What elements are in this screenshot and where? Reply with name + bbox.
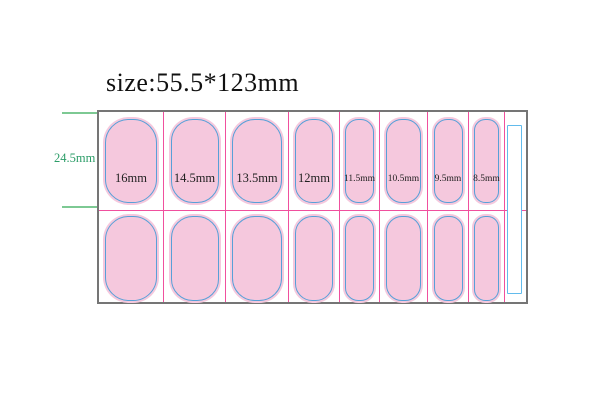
nail-stroke-outline (295, 216, 333, 301)
nail-stroke-outline (232, 216, 282, 301)
nail-stroke-outline (232, 119, 282, 203)
nail-stroke-outline (295, 119, 333, 203)
nail-stroke-outline (434, 119, 463, 203)
column-cell: 8.5mm (469, 112, 505, 302)
nail-shape-row1 (103, 117, 159, 205)
nail-shape-row2 (384, 214, 423, 303)
nail-stroke-outline (386, 119, 421, 203)
nail-stroke-outline (434, 216, 463, 301)
nail-size-label: 16mm (99, 171, 163, 186)
column-cell: 10.5mm (380, 112, 428, 302)
nail-shape-row2 (103, 214, 159, 303)
column-cell: 12mm (289, 112, 340, 302)
sheet-outline: 16mm14.5mm13.5mm12mm11.5mm10.5mm9.5mm8.5… (97, 110, 528, 304)
column-cell: 14.5mm (164, 112, 226, 302)
nail-size-label: 10.5mm (380, 174, 427, 184)
nail-shape-row1 (343, 117, 376, 205)
nail-size-label: 9.5mm (428, 174, 468, 184)
nail-shape-row2 (343, 214, 376, 303)
column-cell: 9.5mm (428, 112, 469, 302)
nail-size-label: 13.5mm (226, 171, 288, 186)
nail-stroke-outline (474, 119, 499, 203)
nail-shape-row2 (293, 214, 335, 303)
nail-size-label: 14.5mm (164, 171, 225, 186)
nail-stroke-outline (386, 216, 421, 301)
nail-shape-row1 (432, 117, 465, 205)
nail-stroke-outline (345, 119, 374, 203)
column-cell: 11.5mm (340, 112, 380, 302)
nail-size-label: 11.5mm (340, 174, 379, 184)
nail-stroke-outline (171, 216, 219, 301)
nail-size-label: 12mm (289, 171, 339, 186)
page: size:55.5*123mm 24.5mm 16mm14.5mm13.5mm1… (0, 0, 600, 406)
nail-stroke-outline (171, 119, 219, 203)
side-slot (507, 125, 522, 294)
size-title: size:55.5*123mm (106, 68, 299, 98)
nail-shape-row2 (169, 214, 221, 303)
nail-shape-row1 (293, 117, 335, 205)
nail-shape-row2 (230, 214, 284, 303)
height-dimension-label: 24.5mm (54, 151, 95, 166)
column-cell: 16mm (99, 112, 164, 302)
nail-shape-row1 (169, 117, 221, 205)
nail-shape-row1 (472, 117, 501, 205)
nail-shape-row2 (432, 214, 465, 303)
nail-stroke-outline (345, 216, 374, 301)
nail-shape-row1 (230, 117, 284, 205)
nail-shape-row1 (384, 117, 423, 205)
nail-shape-row2 (472, 214, 501, 303)
column-cell: 13.5mm (226, 112, 289, 302)
nail-stroke-outline (105, 119, 157, 203)
nail-stroke-outline (105, 216, 157, 301)
nail-size-label: 8.5mm (469, 174, 504, 184)
nail-stroke-outline (474, 216, 499, 301)
